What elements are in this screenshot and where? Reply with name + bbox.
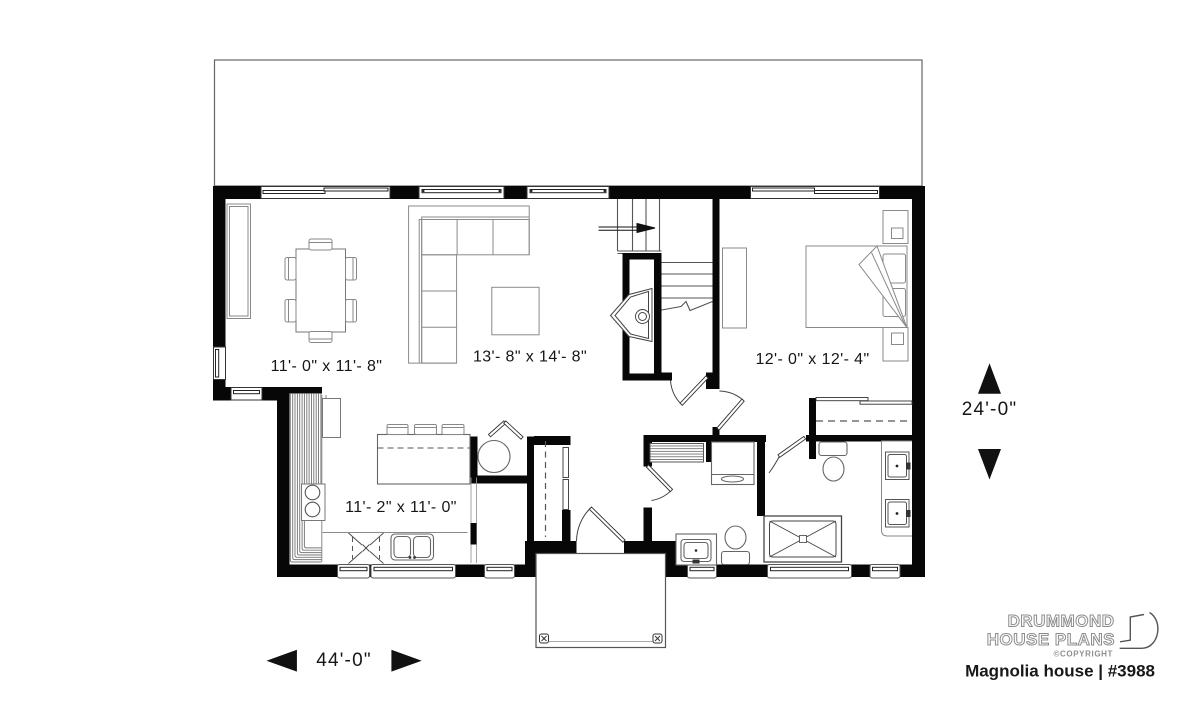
svg-text:HOUSE PLANS: HOUSE PLANS bbox=[987, 630, 1115, 649]
svg-text:DRUMMOND: DRUMMOND bbox=[1008, 612, 1115, 631]
svg-text:44'-0": 44'-0" bbox=[316, 650, 372, 671]
svg-text:11'- 0" x 11'- 8": 11'- 0" x 11'- 8" bbox=[271, 358, 383, 375]
svg-text:Magnolia house | #3988: Magnolia house | #3988 bbox=[965, 662, 1155, 681]
svg-text:©COPYRIGHT: ©COPYRIGHT bbox=[1054, 650, 1113, 659]
svg-text:13'- 8" x 14'- 8": 13'- 8" x 14'- 8" bbox=[473, 349, 587, 366]
svg-text:12'- 0" x 12'- 4": 12'- 0" x 12'- 4" bbox=[755, 351, 869, 368]
svg-text:11'- 2" x 11'- 0": 11'- 2" x 11'- 0" bbox=[345, 499, 457, 516]
svg-text:24'-0": 24'-0" bbox=[962, 399, 1018, 420]
